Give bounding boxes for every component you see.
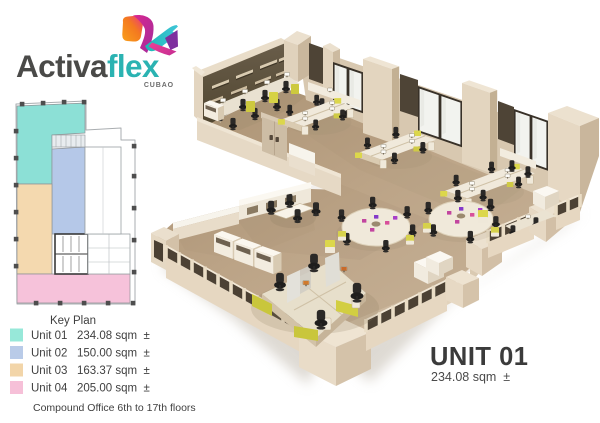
svg-text:UNIT 01: UNIT 01 (430, 343, 528, 371)
svg-text:CUBAO: CUBAO (144, 82, 174, 89)
svg-text:234.08 sqm ±: 234.08 sqm ± (431, 370, 510, 384)
svg-text:150.00 sqm ±: 150.00 sqm ± (77, 348, 150, 360)
svg-text:Activaflex: Activaflex (16, 48, 160, 84)
svg-text:Unit 02: Unit 02 (31, 348, 67, 360)
svg-text:Key Plan: Key Plan (50, 315, 96, 327)
svg-text:Unit 03: Unit 03 (31, 365, 67, 377)
svg-text:163.37 sqm ±: 163.37 sqm ± (77, 365, 150, 377)
svg-text:Unit 04: Unit 04 (31, 383, 68, 395)
svg-text:Compound Office 6th to 17th fl: Compound Office 6th to 17th floors (33, 402, 196, 414)
svg-text:Unit 01: Unit 01 (31, 330, 67, 342)
svg-text:205.00 sqm ±: 205.00 sqm ± (77, 383, 150, 395)
svg-text:234.08 sqm ±: 234.08 sqm ± (77, 330, 150, 342)
